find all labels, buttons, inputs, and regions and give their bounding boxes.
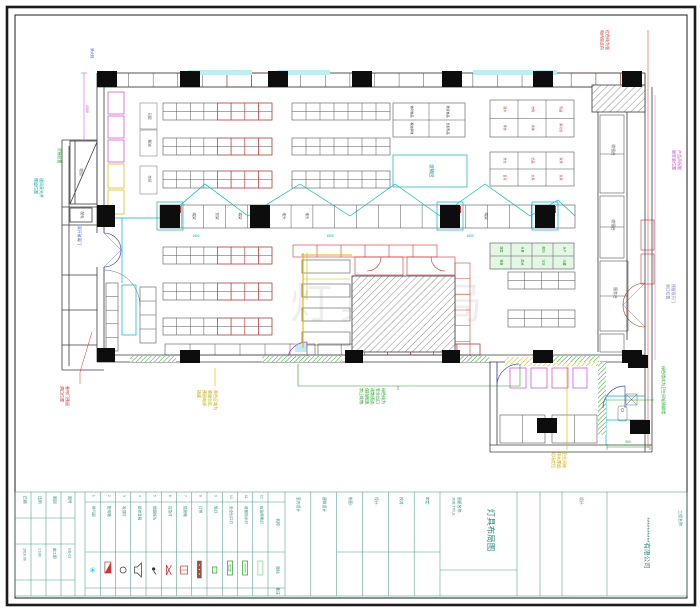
shelf-unit <box>163 283 272 300</box>
power-label: 配电 <box>80 212 85 219</box>
svg-text:货架: 货架 <box>215 213 220 220</box>
legend-item: 9筒灯 <box>212 495 218 573</box>
zone-cell-label: 鲜肉 <box>542 246 547 252</box>
shelf-unit <box>140 287 156 343</box>
zone-cell-label: 饮料 <box>531 106 536 112</box>
note-exit-route: 绿色线为安全出口疏散通道,保持畅通,禁止堆物. <box>359 388 387 405</box>
zone-cell-label: 散装食品 <box>446 105 451 117</box>
legend-name: 吸顶灯 <box>122 506 127 517</box>
legend-number: 8 <box>198 495 202 497</box>
legend-item: 3吸顶灯 <box>120 495 127 573</box>
shelf-unit <box>302 332 350 345</box>
column <box>97 348 115 362</box>
column <box>97 205 115 227</box>
svg-text:端架: 端架 <box>192 213 197 220</box>
svg-text:校对:: 校对: <box>399 497 404 506</box>
column <box>345 350 363 363</box>
note-alarm-device: 产品声报警器安装位置 <box>672 150 684 170</box>
note-plumbing: 卫生间给排水预留,现场定位. <box>551 452 568 469</box>
fan-symbol-icon: ✳ <box>89 566 96 575</box>
legend: 1换气扇✳2配电箱3吸顶灯4壁挂音箱5烟感探头6应急灯7插座箱8灯带9筒灯10安… <box>89 492 264 596</box>
svg-text:图号: 图号 <box>68 496 73 504</box>
svg-text:2018.06: 2018.06 <box>23 548 27 561</box>
title-block: 1换气扇✳2配电箱3吸顶灯4壁挂音箱5烟感探头6应急灯7插座箱8灯带9筒灯10安… <box>15 492 687 596</box>
shelf-unit <box>552 415 597 443</box>
zone-table: 酒水饮料乳品零食调味南北货 <box>490 100 574 137</box>
column <box>442 350 460 363</box>
svg-text:端架: 端架 <box>238 213 243 220</box>
svg-text:设计:: 设计: <box>374 497 379 506</box>
legend-item: 10安全出口灯 <box>227 495 234 575</box>
legend-name: 插座箱 <box>183 506 188 517</box>
cad-sheet: 灯具布局 休闲食品散装食品粮油调味日配乳品酒水饮料乳品零食调味南北货洗化纸品家清… <box>0 0 700 616</box>
zone-cell-label: 文具 <box>531 174 536 180</box>
column <box>180 71 200 87</box>
legend-item: 11疏散指示灯 <box>243 495 250 575</box>
drawing-name-label: 图纸名称:JOB TITLE <box>452 497 463 516</box>
drawing-title: 灯具布局图 <box>486 509 496 552</box>
svg-text:收银台: 收银台 <box>611 144 616 156</box>
shelf-unit <box>163 247 272 264</box>
shelf-unit <box>163 318 272 335</box>
note-double-door: 预留双开门洞口位置 <box>666 284 677 303</box>
zone-cell-label: 洗化 <box>503 157 508 163</box>
legend-name: 筒灯 <box>214 506 219 514</box>
dim-1500-a: 1500 <box>192 234 199 238</box>
zone-cell-label: 熟食 <box>500 259 505 265</box>
legend-number: 1 <box>92 495 96 497</box>
column <box>442 71 462 87</box>
zone-cell-label: 面点 <box>521 259 526 265</box>
svg-text:室内设计: 室内设计 <box>296 497 301 512</box>
zone-cell-label: 冷冻 <box>542 259 547 265</box>
zone-cell-label: 玩具 <box>559 174 564 180</box>
zone-table: 洗化纸品家清百货文具玩具 <box>490 152 574 186</box>
svg-text:粮油: 粮油 <box>148 140 153 147</box>
note-rolling-door: 卷帘门预留洞口位置 <box>60 386 72 406</box>
legend-number: 11 <box>244 495 248 499</box>
shelf-unit <box>508 310 575 327</box>
column <box>533 350 553 363</box>
svg-text:服务台: 服务台 <box>613 287 618 299</box>
legend-item: 12应急照明灯 <box>258 495 265 575</box>
shelf-unit <box>600 334 624 352</box>
strip-symbol-icon <box>197 561 201 578</box>
toilet-fixtures <box>618 394 637 421</box>
legend-number: 9 <box>214 495 218 497</box>
note-checkout-power: 黄色区域为收银台区,预留电源插座. <box>197 390 220 410</box>
legend-number: 10 <box>229 495 233 499</box>
legend-name: 壁挂音箱 <box>137 506 142 521</box>
em-symbol-icon <box>166 565 171 575</box>
svg-text:图标: 图标 <box>276 566 281 574</box>
dim-900: 900 <box>625 440 631 444</box>
svg-text:设计:: 设计: <box>579 497 584 506</box>
sensor-symbol-icon <box>152 567 156 574</box>
spot-symbol-icon <box>212 567 216 573</box>
central-void-hatch <box>352 276 455 352</box>
note-glass-door: 双开玻璃门 <box>77 226 82 245</box>
shelf-unit <box>106 283 118 351</box>
shelf-unit <box>292 138 390 155</box>
legend-item: 7插座箱 <box>181 495 189 574</box>
svg-text:日配: 日配 <box>148 113 153 120</box>
svg-text:审定:: 审定: <box>425 497 430 506</box>
zone-cell-label: 休闲食品 <box>410 105 415 117</box>
legend-number: 4 <box>137 495 141 497</box>
svg-text:日期: 日期 <box>23 496 28 504</box>
column <box>533 71 553 87</box>
legend-name: 烟感探头 <box>153 506 158 521</box>
dim-4500: 4500 <box>85 105 89 113</box>
note-partition-wall: 绿色墙体为卫生间轻质隔墙 <box>661 366 667 414</box>
column <box>97 71 117 87</box>
zone-cell-label: 乳品 <box>559 106 564 112</box>
circuit-device-chips <box>177 206 556 213</box>
zone-cell-label: 南北货 <box>559 123 564 132</box>
legend-number: 7 <box>183 495 187 497</box>
svg-text:✳: ✳ <box>89 566 96 575</box>
shelf-unit <box>455 263 470 357</box>
svg-text:堆头: 堆头 <box>305 213 310 221</box>
project-name-label: 工程名称: <box>678 510 684 527</box>
zone-cell-label: 冷藏 <box>563 259 568 265</box>
hydrant-label: 消火栓 <box>90 48 95 59</box>
shelf-unit <box>302 260 350 273</box>
column <box>268 71 288 87</box>
svg-text:杂货: 杂货 <box>148 176 153 183</box>
legend-name: 疏散指示灯 <box>244 506 249 524</box>
column <box>160 205 180 228</box>
legend-number: 5 <box>153 495 157 497</box>
escalator-hatch <box>592 85 645 112</box>
zone-table: 休闲食品散装食品粮油调味日配乳品 <box>393 103 465 137</box>
column <box>180 350 200 363</box>
zone-cell-label: 百货 <box>503 174 508 180</box>
legend-name: 应急照明灯 <box>259 506 264 524</box>
svg-text:图别: 图别 <box>53 496 58 504</box>
zone-table: 蔬菜水果鲜肉水产熟食面点冷冻冷藏 <box>490 243 574 269</box>
svg-text:备注: 备注 <box>276 587 281 595</box>
exitB-symbol-icon <box>243 561 248 575</box>
svg-text:比例: 比例 <box>38 496 43 504</box>
annotations: 通风采光井预留位置 货梯位置 双开玻璃门 卷帘门预留洞口位置 黄色区域为收银台区… <box>34 30 684 469</box>
shelf-unit <box>292 103 390 120</box>
column <box>440 205 460 228</box>
legend-number: 6 <box>168 495 172 497</box>
note-cable-tray: 红色线为强电桥架走向 <box>600 30 612 50</box>
shelf-unit <box>160 205 575 228</box>
zone-cell-label: 纸品 <box>531 157 536 163</box>
zone-cell-label: 零食 <box>503 125 508 131</box>
legend-name: 灯带 <box>198 506 203 514</box>
zone-cell-label: 酒水 <box>503 106 508 112</box>
shelf-unit <box>292 171 390 188</box>
svg-text:建筑设计: 建筑设计 <box>322 497 327 512</box>
title-block-grid <box>15 492 687 596</box>
title-block-text: 日期 比例 图别 图号 2018.06 1:100 施工图 GD-01 名称 图… <box>23 496 685 595</box>
socket-symbol-icon <box>181 566 188 574</box>
shelf-unit <box>163 103 272 120</box>
legend-item: 2配电箱 <box>105 495 112 573</box>
legend-number: 2 <box>107 495 111 497</box>
dim-1500-b: 1500 <box>326 234 333 238</box>
legend-item: 1换气扇✳ <box>89 495 96 575</box>
svg-text:堆头: 堆头 <box>282 213 287 221</box>
legend-item: 6应急灯 <box>166 495 173 575</box>
speaker-symbol-icon <box>134 563 141 577</box>
column <box>250 205 270 228</box>
svg-text:施工图: 施工图 <box>53 548 58 559</box>
legend-name: 换气扇 <box>92 506 97 517</box>
svg-text:GD-01: GD-01 <box>68 548 72 558</box>
shelf-unit <box>508 272 575 289</box>
note-freight-lift: 货梯位置 <box>57 148 62 163</box>
svg-text:名称: 名称 <box>276 518 281 526</box>
promo-label: 促销区 <box>428 164 435 178</box>
zone-cell-label: 水产 <box>563 246 568 252</box>
legend-name: 安全出口灯 <box>229 506 234 524</box>
svg-text:1:100: 1:100 <box>38 548 42 557</box>
ramp-label: 坡道 <box>79 168 84 176</box>
shelf-unit <box>163 138 272 155</box>
column <box>537 418 557 433</box>
exitA-symbol-icon <box>227 561 232 575</box>
column <box>352 71 372 87</box>
dim-1500-c: 1500 <box>466 234 473 238</box>
legend-name: 应急灯 <box>168 506 173 517</box>
svg-text:端架: 端架 <box>484 213 489 221</box>
zone-cell-label: 粮油调味 <box>410 122 415 134</box>
column <box>535 205 555 228</box>
panel-symbol-icon <box>105 562 111 573</box>
legend-name: 配电箱 <box>107 506 112 517</box>
legend-number: 12 <box>259 495 263 499</box>
legend-number: 3 <box>122 495 126 497</box>
zone-cell-label: 水果 <box>521 246 526 252</box>
zone-cell-label: 蔬菜 <box>500 246 505 252</box>
legend-item: 4壁挂音箱 <box>134 495 142 577</box>
column <box>622 71 642 87</box>
light-symbol-icon <box>120 567 126 573</box>
legend-item: 5烟感探头 <box>152 495 158 575</box>
company-name: **********有限公司 <box>643 517 652 568</box>
zone-cell-label: 家清 <box>559 157 564 163</box>
zone-cell-label: 日配乳品 <box>446 122 451 134</box>
column <box>628 355 648 368</box>
svg-text:收银台: 收银台 <box>611 219 616 231</box>
note-ventilation: 通风采光井预留位置 <box>34 178 46 198</box>
zone-tables: 休闲食品散装食品粮油调味日配乳品酒水饮料乳品零食调味南北货洗化纸品家清百货文具玩… <box>393 100 574 269</box>
legend-item: 8灯带 <box>197 495 203 578</box>
zone-cell-label: 调味 <box>531 125 536 131</box>
svg-text:制图:: 制图: <box>348 497 353 506</box>
exitC-symbol-icon <box>258 561 263 575</box>
column <box>630 420 650 434</box>
shelf-unit <box>163 171 272 188</box>
